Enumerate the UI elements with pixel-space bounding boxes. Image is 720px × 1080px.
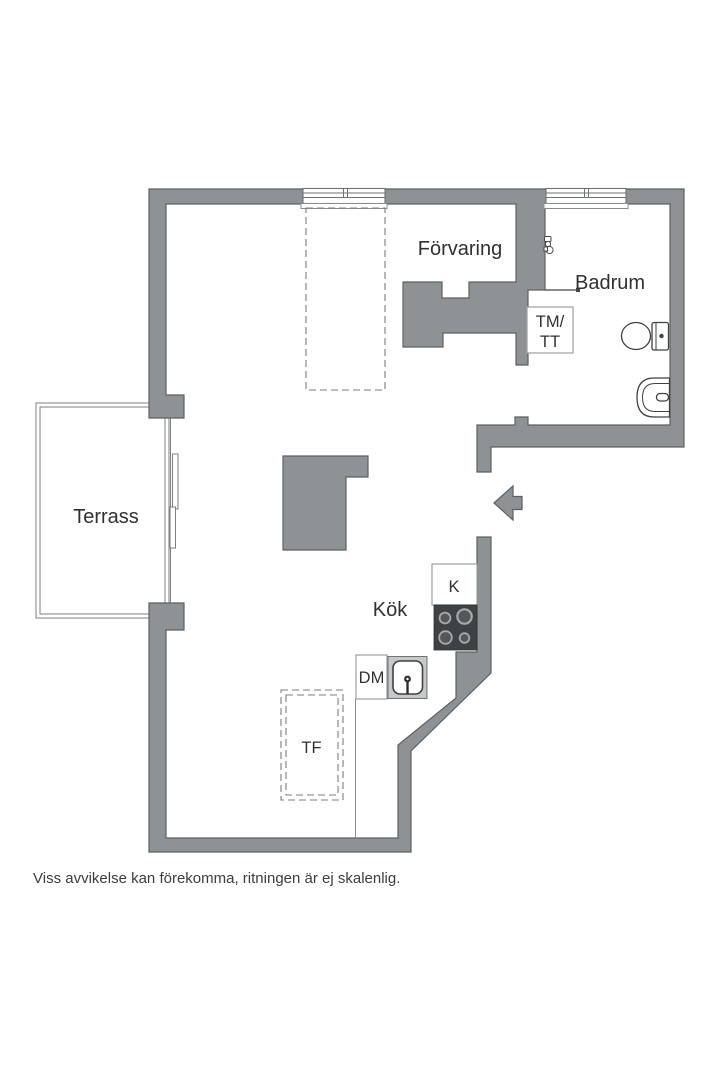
wall-upper-structure (149, 189, 684, 472)
faucet-stem (406, 681, 408, 694)
shower-mixer-icon (544, 237, 553, 254)
fridge-label: K (448, 578, 459, 596)
kitchen-sink-icon (388, 657, 427, 699)
bed-outline (306, 208, 385, 390)
room-label-kitchen: Kök (373, 599, 408, 621)
dishwasher-label: DM (359, 669, 385, 687)
bathroom-sink-icon (637, 378, 670, 417)
washer-dryer-label-top: TM/ (536, 313, 565, 331)
entrance-arrow-icon (494, 486, 522, 520)
stove-icon (434, 605, 477, 650)
washer-dryer-label-bottom: TT (540, 333, 560, 351)
drying-cabinet-label: TF (301, 739, 321, 757)
pillar-block (283, 456, 368, 550)
window-bedroom (301, 189, 387, 209)
room-label-bathroom: Badrum (575, 272, 645, 294)
window-bathroom (544, 189, 628, 209)
sliding-door-panel (170, 507, 176, 548)
window-sill (544, 204, 628, 209)
sink-tap (657, 394, 669, 402)
sliding-door-panel (173, 454, 179, 509)
floor-plan-page: TM/ TT K DM (0, 0, 720, 1080)
room-label-terrace: Terrass (73, 506, 139, 528)
floor-plan: TM/ TT K DM (0, 0, 720, 1080)
room-label-storage: Förvaring (418, 238, 502, 260)
disclaimer-text: Viss avvikelse kan förekomma, ritningen … (33, 870, 400, 887)
sliding-door (170, 418, 178, 603)
toilet-icon (622, 323, 669, 351)
